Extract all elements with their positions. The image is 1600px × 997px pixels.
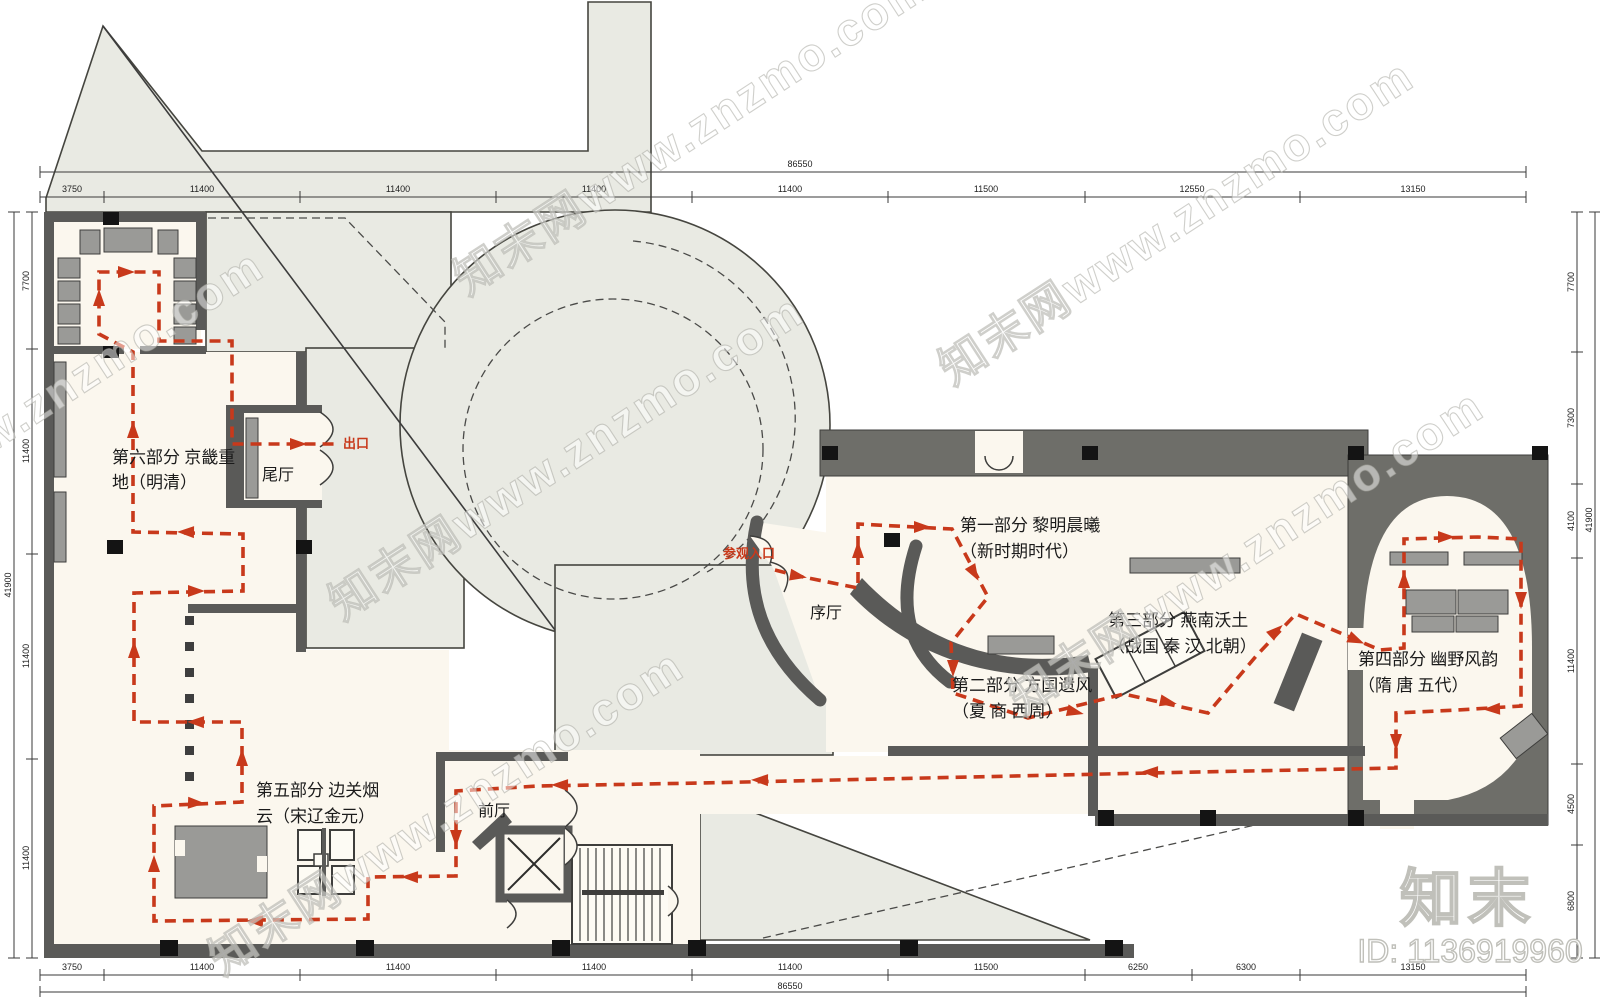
dim-top-1: 11400 xyxy=(190,184,214,194)
floor-plan-page: 第六部分 京畿重 地（明清） 第一部分 黎明晨曦 （新时期时代） 第二部分 方国… xyxy=(0,0,1600,997)
dim-left-0: 7700 xyxy=(21,271,31,291)
label-exit: 出口 xyxy=(343,436,369,451)
dim-bot-2: 11400 xyxy=(386,962,410,972)
dim-right-2: 4100 xyxy=(1566,511,1576,531)
dim-bot-0: 3750 xyxy=(62,962,82,972)
watermark-id: ID: 1136919960 xyxy=(1357,933,1582,969)
label-part1-line1: 第一部分 黎明晨曦 xyxy=(960,516,1100,535)
dim-right-overall: 41900 xyxy=(1584,507,1594,532)
dim-bot-7: 6300 xyxy=(1236,962,1256,972)
staircase xyxy=(572,845,672,944)
dimensions-right: 7700 7300 4100 11400 4500 6800 41900 xyxy=(1566,212,1600,958)
label-part4-line1: 第四部分 幽野风韵 xyxy=(1358,650,1498,669)
floor-plan-canvas: 第六部分 京畿重 地（明清） 第一部分 黎明晨曦 （新时期时代） 第二部分 方国… xyxy=(0,0,1600,997)
dim-right-3: 11400 xyxy=(1566,649,1576,673)
site-top-band xyxy=(46,2,651,212)
label-part1-line2: （新时期时代） xyxy=(960,542,1079,561)
label-hall-xuting: 序厅 xyxy=(810,604,842,622)
dim-right-4: 4500 xyxy=(1566,794,1576,814)
dim-left-overall: 41900 xyxy=(3,572,13,597)
dim-bot-6: 6250 xyxy=(1128,962,1148,972)
dim-left-3: 11400 xyxy=(21,846,31,870)
dim-top-5: 11500 xyxy=(974,184,998,194)
dim-left-2: 11400 xyxy=(21,644,31,668)
dim-bottom-overall: 86550 xyxy=(777,981,802,991)
dimensions-bottom: 3750 11400 11400 11400 11400 11500 6250 … xyxy=(40,962,1526,997)
dim-right-1: 7300 xyxy=(1566,408,1576,428)
label-part4-line2: （隋 唐 五代） xyxy=(1358,675,1469,695)
label-part5-line1: 第五部分 边关烟 xyxy=(256,781,379,800)
label-part6-line2: 地（明清） xyxy=(112,473,197,492)
site-triangle-bottom xyxy=(700,792,1090,940)
dim-top-0: 3750 xyxy=(62,184,82,194)
dim-top-overall: 86550 xyxy=(787,159,812,169)
dim-bot-5: 11500 xyxy=(974,962,998,972)
dim-bot-3: 11400 xyxy=(582,962,606,972)
label-entrance: 参观入口 xyxy=(723,546,775,561)
dim-top-2: 11400 xyxy=(386,184,410,194)
dim-top-7: 13150 xyxy=(1400,184,1425,194)
label-part6-line1: 第六部分 京畿重 xyxy=(112,448,235,467)
watermark-text: 知末网www.znzmo.com xyxy=(929,49,1423,395)
label-part5-line2: 云（宋辽金元） xyxy=(256,807,375,826)
znzmo-logo: 知末 xyxy=(1400,865,1536,934)
dim-right-0: 7700 xyxy=(1566,272,1576,292)
dim-right-5: 6800 xyxy=(1566,891,1576,911)
dim-bot-4: 11400 xyxy=(778,962,802,972)
dim-top-4: 11400 xyxy=(778,184,802,194)
dim-bot-1: 11400 xyxy=(190,962,214,972)
dimensions-left: 41900 7700 11400 11400 11400 xyxy=(3,212,38,958)
label-hall-weiting: 尾厅 xyxy=(262,467,294,484)
